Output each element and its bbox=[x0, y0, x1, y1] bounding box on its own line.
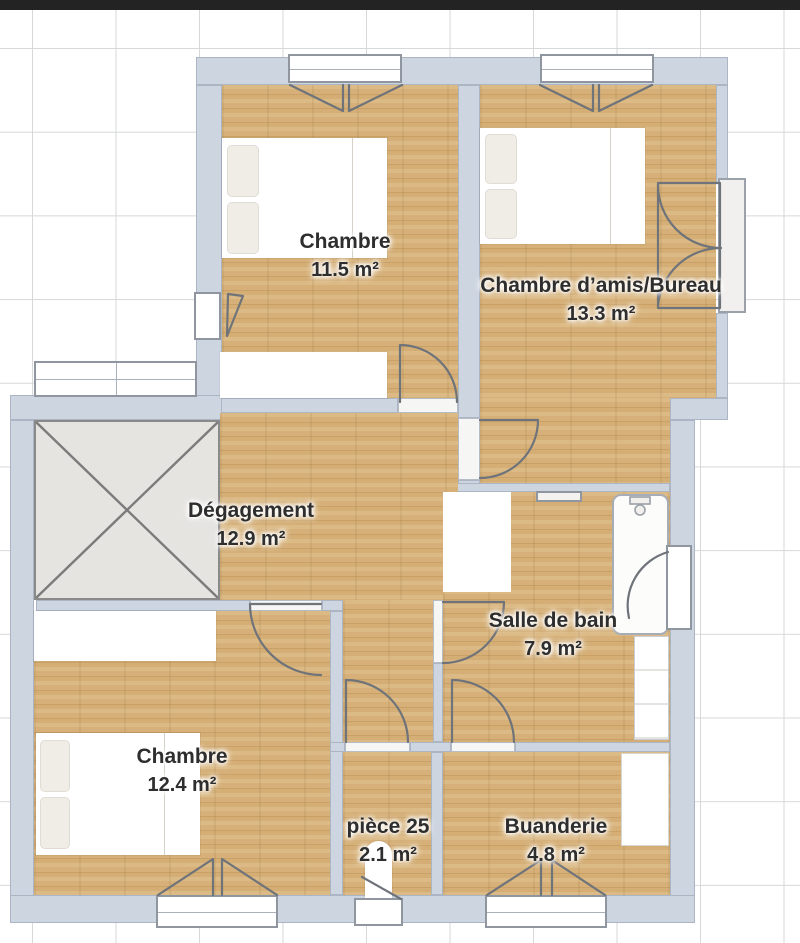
room-label-degagement: Dégagement 12.9 m² bbox=[188, 499, 314, 551]
wall bbox=[515, 742, 670, 752]
room-label-chambre-2: Chambre 12.4 m² bbox=[136, 745, 227, 797]
door-threshold bbox=[433, 600, 443, 663]
wall bbox=[670, 398, 728, 420]
window[interactable] bbox=[354, 898, 403, 926]
towel-radiator[interactable] bbox=[536, 491, 582, 502]
wall bbox=[670, 420, 695, 923]
wall bbox=[433, 663, 443, 742]
room-area: 11.5 m² bbox=[299, 259, 390, 282]
wall bbox=[330, 742, 345, 752]
bed-cover-line bbox=[610, 128, 611, 244]
room-label-chambre-1: Chambre 11.5 m² bbox=[299, 230, 390, 282]
room-name: Chambre d’amis/Bureau bbox=[480, 274, 722, 297]
wall bbox=[10, 395, 222, 420]
pillow bbox=[227, 145, 259, 197]
wardrobe[interactable] bbox=[34, 611, 216, 661]
window[interactable] bbox=[485, 895, 607, 928]
room-label-salle-de-bain: Salle de bain 7.9 m² bbox=[489, 609, 617, 661]
wall bbox=[458, 85, 480, 418]
wall bbox=[330, 611, 343, 895]
washing-machine[interactable] bbox=[621, 753, 669, 846]
wall bbox=[322, 600, 343, 611]
room-area: 13.3 m² bbox=[480, 303, 722, 326]
door-threshold bbox=[451, 742, 515, 752]
window[interactable] bbox=[156, 895, 278, 928]
wall bbox=[10, 420, 34, 923]
room-label-buanderie: Buanderie 4.8 m² bbox=[505, 815, 608, 867]
window[interactable] bbox=[288, 54, 402, 83]
window-mullion bbox=[116, 363, 117, 395]
pillow bbox=[227, 202, 259, 254]
room-name: Dégagement bbox=[188, 499, 314, 522]
room-area: 7.9 m² bbox=[489, 638, 617, 661]
pillow bbox=[485, 189, 517, 239]
room-area: 12.9 m² bbox=[188, 528, 314, 551]
wall bbox=[36, 600, 250, 611]
bathtub[interactable] bbox=[612, 494, 669, 635]
room-area: 2.1 m² bbox=[347, 844, 430, 867]
room-floor-degagement-corridor[interactable] bbox=[343, 600, 433, 742]
room-floor-chambre-amis[interactable] bbox=[480, 398, 670, 483]
pillow bbox=[40, 797, 70, 849]
wall bbox=[431, 752, 443, 895]
wall bbox=[196, 85, 222, 413]
room-label-chambre-amis: Chambre d’amis/Bureau 13.3 m² bbox=[480, 274, 722, 326]
wall bbox=[196, 398, 398, 413]
window-mullion bbox=[290, 69, 400, 70]
window[interactable] bbox=[666, 545, 692, 630]
wardrobe[interactable] bbox=[220, 352, 387, 398]
room-name: Chambre bbox=[136, 745, 227, 768]
window-mullion bbox=[158, 912, 276, 913]
washbasin-cabinet[interactable] bbox=[634, 636, 669, 740]
door-threshold bbox=[250, 600, 322, 611]
room-label-piece-25: pièce 25 2.1 m² bbox=[347, 815, 430, 867]
room-name: Chambre bbox=[299, 230, 390, 253]
room-name: pièce 25 bbox=[347, 815, 430, 838]
window[interactable] bbox=[194, 292, 221, 340]
window-mullion bbox=[487, 912, 605, 913]
top-black-bar bbox=[0, 0, 800, 10]
door-threshold bbox=[458, 418, 480, 480]
room-name: Buanderie bbox=[505, 815, 608, 838]
window[interactable] bbox=[34, 361, 197, 397]
room-name: Salle de bain bbox=[489, 609, 617, 632]
window[interactable] bbox=[540, 54, 654, 83]
door-threshold bbox=[398, 398, 458, 413]
shower[interactable] bbox=[443, 492, 511, 592]
floor-plan-canvas: Chambre 11.5 m² Chambre d’amis/Bureau 13… bbox=[0, 0, 800, 943]
room-area: 4.8 m² bbox=[505, 844, 608, 867]
pillow bbox=[40, 740, 70, 792]
room-area: 12.4 m² bbox=[136, 774, 227, 797]
wall bbox=[410, 742, 451, 752]
door-threshold bbox=[345, 742, 410, 752]
wall bbox=[716, 85, 728, 183]
pillow bbox=[485, 134, 517, 184]
window-mullion bbox=[542, 69, 652, 70]
